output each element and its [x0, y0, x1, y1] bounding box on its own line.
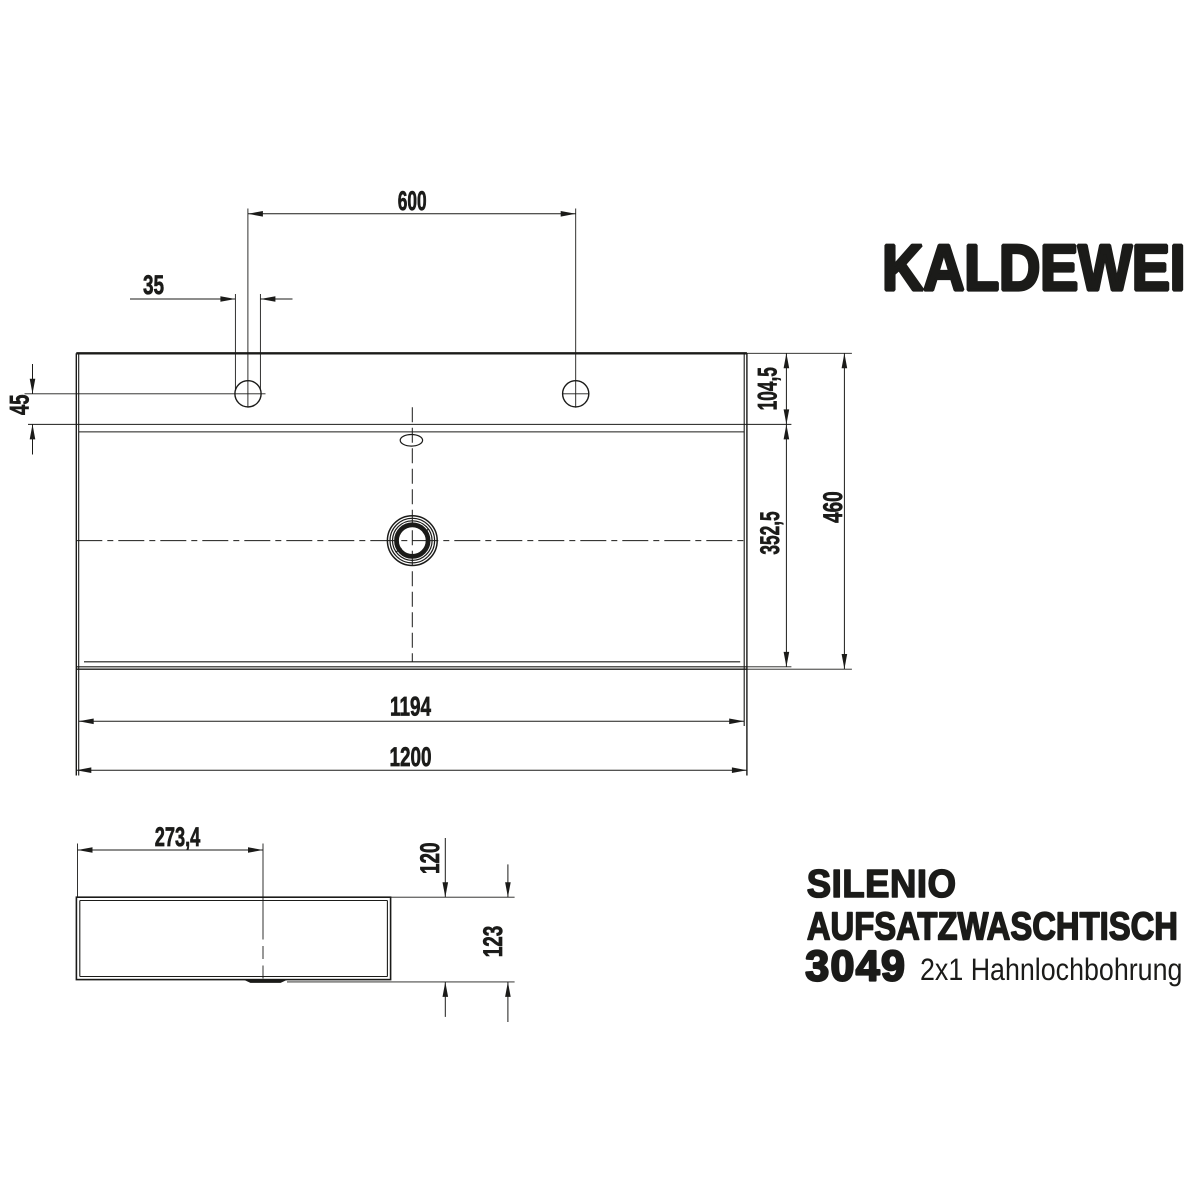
svg-text:45: 45	[4, 395, 34, 415]
svg-text:1194: 1194	[390, 691, 431, 721]
svg-text:2x1 Hahnlochbohrung: 2x1 Hahnlochbohrung	[920, 952, 1182, 987]
svg-text:KALDEWEI: KALDEWEI	[882, 231, 1185, 304]
svg-text:123: 123	[478, 926, 508, 958]
svg-text:SILENIO: SILENIO	[807, 863, 957, 906]
svg-text:120: 120	[415, 842, 445, 874]
svg-text:104,5: 104,5	[752, 367, 782, 410]
svg-text:1200: 1200	[389, 742, 431, 772]
svg-text:600: 600	[398, 186, 427, 216]
svg-text:3049: 3049	[805, 943, 906, 991]
svg-text:273,4: 273,4	[155, 822, 201, 852]
svg-text:35: 35	[143, 270, 164, 300]
svg-text:460: 460	[818, 491, 848, 523]
svg-text:352,5: 352,5	[755, 511, 785, 554]
